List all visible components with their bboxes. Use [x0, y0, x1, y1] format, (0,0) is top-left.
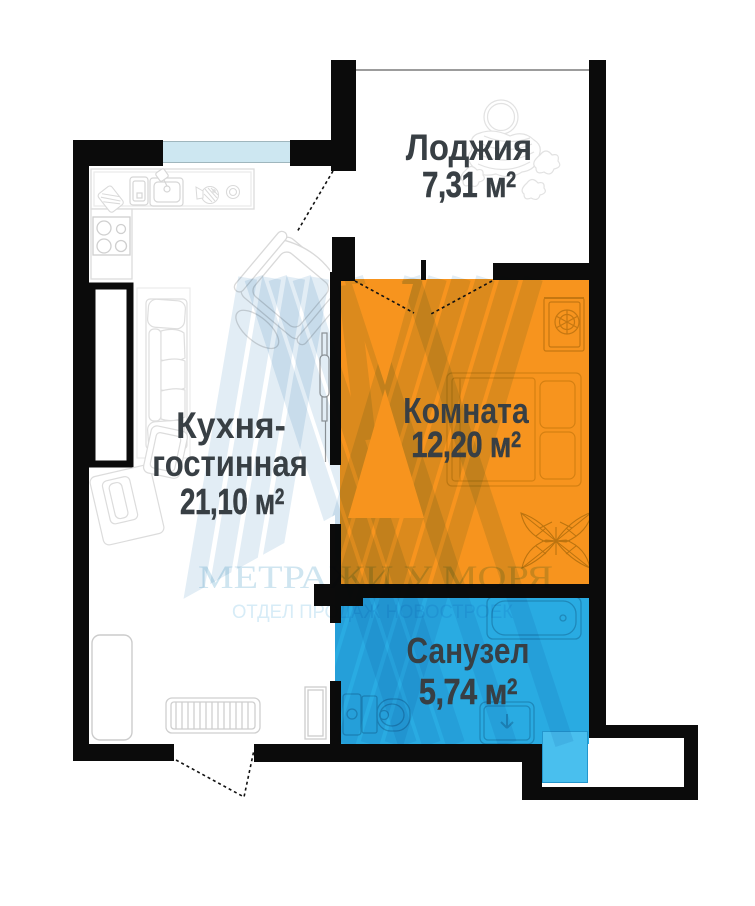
svg-text:МЕТРАЖИ У МОРЯ: МЕТРАЖИ У МОРЯ — [198, 560, 553, 596]
svg-text:ОТДЕЛ ПРОДАЖ НОВОСТРОЕК: ОТДЕЛ ПРОДАЖ НОВОСТРОЕК — [232, 602, 513, 623]
